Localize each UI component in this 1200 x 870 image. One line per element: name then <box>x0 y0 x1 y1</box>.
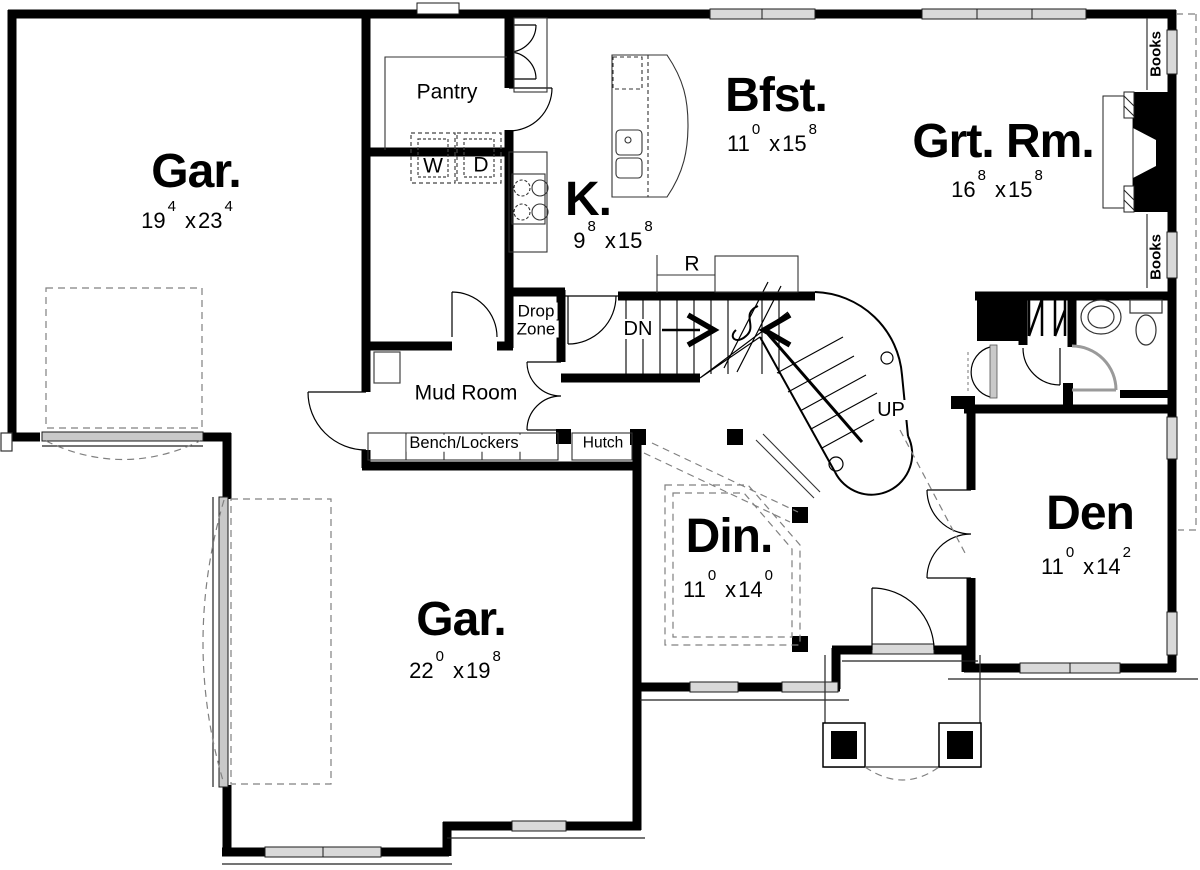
drop-zone-label-line2: Zone <box>514 321 559 338</box>
books-label-lower: Books <box>1149 234 1164 280</box>
pantry-shelf <box>385 57 507 150</box>
front-door-sill <box>872 644 934 654</box>
stairs-up-label: UP <box>874 400 908 420</box>
room-dim-garage-bottom: 220x198 <box>409 658 501 682</box>
room-dim-den: 110x142 <box>1041 554 1131 578</box>
garage-entry-door <box>308 392 366 450</box>
roof-overhang <box>1176 14 1196 530</box>
refrigerator <box>715 256 798 292</box>
front-door <box>872 588 934 650</box>
vanity-sink <box>1081 300 1121 334</box>
drop-zone-label-line1: Drop <box>515 303 558 320</box>
utility-box <box>374 352 400 383</box>
garage-stall-top <box>46 288 202 428</box>
fireplace <box>1103 92 1172 212</box>
room-label-den: Den <box>1046 490 1134 538</box>
hall-closet-door <box>1023 348 1060 385</box>
porch <box>823 655 981 767</box>
powder-door <box>1072 346 1116 390</box>
room-label-pantry: Pantry <box>417 82 478 103</box>
foyer-diagonal <box>900 430 965 553</box>
room-label-dining: Din. <box>686 513 773 561</box>
room-label-garage-bottom: Gar. <box>416 596 505 644</box>
closet-rod-symbol <box>1029 299 1065 336</box>
toilet-bowl <box>1136 315 1156 345</box>
garage-doors <box>42 432 228 787</box>
room-label-garage-top: Gar. <box>151 148 240 196</box>
dining-cant-lines <box>756 434 820 498</box>
bench-lockers-label: Bench/Lockers <box>406 435 521 452</box>
room-label-great-room: Grt. Rm. <box>912 118 1093 166</box>
refrigerator-label: R <box>681 254 702 275</box>
foyer-arch <box>971 347 990 397</box>
washer-label: W <box>423 156 443 177</box>
hutch-label: Hutch <box>580 435 627 451</box>
toilet-tank <box>1130 300 1162 313</box>
garage-door-top <box>42 432 203 441</box>
kitchen-island <box>612 55 688 197</box>
stairs-down-label: DN <box>621 319 656 339</box>
room-label-breakfast: Bfst. <box>725 72 827 120</box>
room-label-mud-room: Mud Room <box>415 383 518 404</box>
den-french-doors <box>927 490 971 578</box>
books-label-upper: Books <box>1149 31 1164 77</box>
room-dim-breakfast: 110x158 <box>727 131 817 155</box>
mud-closet-doors <box>527 362 561 430</box>
bath-fixtures <box>1081 300 1162 345</box>
break-s <box>733 306 758 340</box>
up-chevron <box>764 315 790 345</box>
room-dim-dining: 110x140 <box>680 577 776 601</box>
up-leader <box>768 334 862 442</box>
porch-step-arc <box>865 767 939 780</box>
dining-tray-ceiling <box>665 485 800 645</box>
garage-door-swing-top <box>46 441 200 460</box>
room-label-kitchen: K. <box>565 176 611 224</box>
garage-stall-left <box>231 499 331 784</box>
room-dim-great-room: 168x158 <box>951 177 1043 201</box>
pantry-door <box>509 88 552 131</box>
room-dim-kitchen: 98x158 <box>573 228 652 252</box>
room-dim-garage-top: 194x234 <box>141 208 233 232</box>
floor-plan: Gar. 194x234 Pantry W D K. 98x158 Bfst. … <box>0 0 1200 870</box>
sill-lines <box>1 433 1198 864</box>
basement-door <box>568 296 616 344</box>
dryer-label: D <box>473 155 488 176</box>
laundry-door <box>452 292 497 337</box>
garage-door-left <box>219 497 228 787</box>
